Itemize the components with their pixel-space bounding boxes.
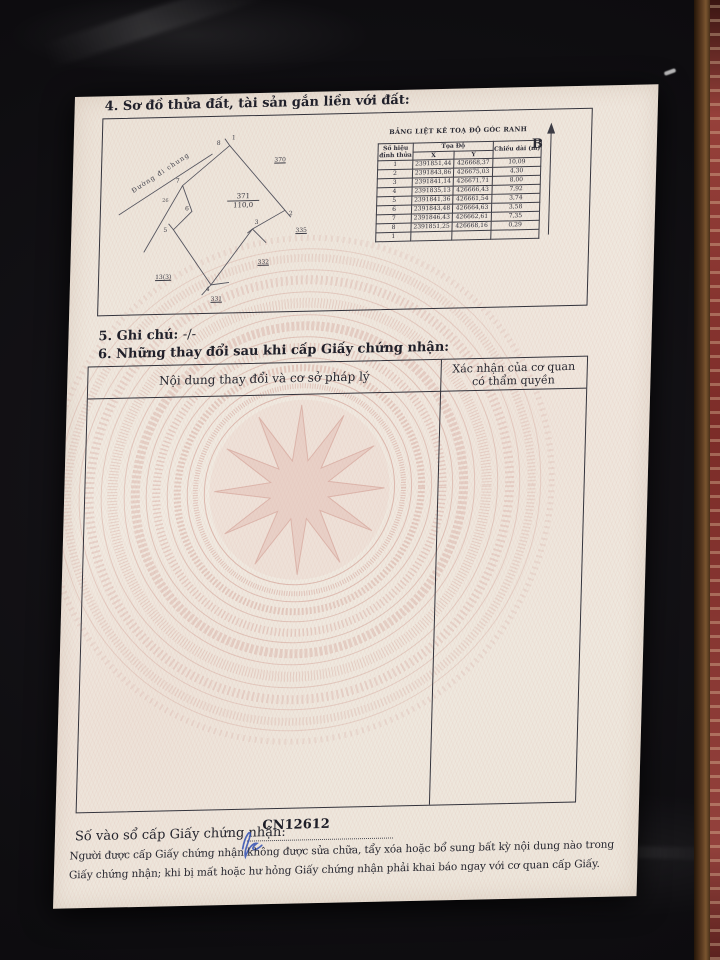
vertex-label-4: 4 [206, 287, 210, 293]
section4-title: 4. Sơ đồ thửa đất, tài sản gắn liền với … [105, 93, 410, 115]
changes-table: Nội dung thay đổi và cơ sở pháp lý Xác n… [76, 356, 589, 814]
vertex-label-3: 3 [255, 220, 259, 226]
vertex-label-8: 8 [217, 141, 221, 147]
vertex-label-6: 6 [185, 206, 189, 212]
small-note: 26 [162, 198, 169, 204]
vertex-label-1: 1 [232, 135, 236, 141]
section5-value: -/- [183, 327, 197, 342]
section5-title: 5. Ghi chú: -/- [98, 327, 196, 344]
parcel-number-area-label: 371 110,0 [227, 192, 259, 210]
coord-cell: 426668,16 [452, 221, 491, 231]
changes-table-divider [429, 360, 442, 805]
vertex-label-7: 7 [176, 179, 180, 185]
coordinate-table: Số hiệuđỉnh thửa Tọa Độ Chiều dài (m) X … [375, 140, 542, 243]
coord-cell: 426675,03 [453, 167, 492, 177]
neighbor-parcel-331: 331 [210, 297, 222, 303]
coord-cell [452, 230, 491, 240]
coord-cell: 426668,37 [454, 158, 493, 168]
coord-cell: 426664,63 [452, 203, 491, 213]
coord-cell [491, 229, 539, 239]
vertex-label-5: 5 [163, 228, 167, 234]
neighbor-parcel-13-3: 13(3) [155, 275, 171, 281]
vertex-label-2: 2 [289, 211, 293, 217]
coord-cell: 1 [376, 232, 411, 242]
parcel-number: 371 [227, 192, 259, 202]
notice-line2: Giấy chứng nhận; khi bị mất hoặc hư hỏng… [69, 858, 600, 882]
coord-table-body: 12391851,44426668,3710,0922391843,864266… [376, 157, 541, 242]
changes-col1-header: Nội dung thay đổi và cơ sở pháp lý [88, 368, 441, 390]
neighbor-parcel-332: 332 [257, 260, 269, 266]
north-arrow-icon [541, 120, 560, 240]
col-header-vertex: Số hiệuđỉnh thửa [378, 143, 413, 161]
changes-table-header-line [88, 388, 586, 400]
coord-cell: 426666,43 [453, 185, 492, 195]
coord-cell: 426662,61 [452, 212, 491, 222]
changes-col2-header: Xác nhận của cơ quan có thẩm quyền [440, 360, 587, 389]
neighbor-parcel-335: 335 [295, 228, 307, 234]
carpet-edge [710, 0, 720, 960]
north-label: B [532, 137, 543, 152]
neighbor-parcel-370: 370 [274, 157, 286, 163]
plot-diagram-box: 1 2 3 4 5 6 7 8 370 335 332 331 13(3) Đư… [97, 108, 593, 317]
coord-cell [411, 231, 452, 241]
certificate-page: 4. Sơ đồ thửa đất, tài sản gắn liền với … [53, 84, 658, 909]
table-wood-edge [694, 0, 711, 960]
coord-cell: 426661,54 [453, 194, 492, 204]
section5-label: 5. Ghi chú: [98, 328, 178, 345]
coord-cell: 426671,71 [453, 176, 492, 186]
parcel-area: 110,0 [233, 201, 253, 209]
